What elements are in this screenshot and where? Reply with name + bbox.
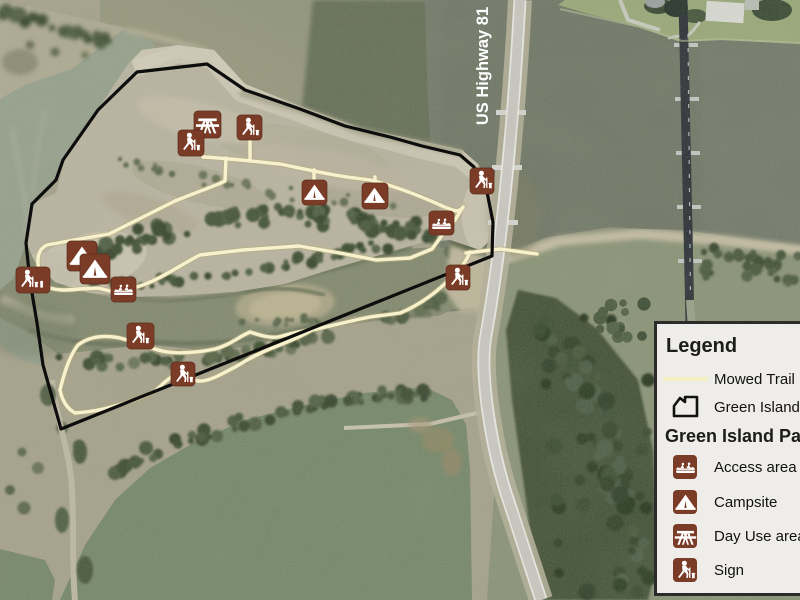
svg-text:US Highway 81: US Highway 81 <box>474 7 492 125</box>
svg-text:Sign: Sign <box>714 562 744 579</box>
svg-text:Mowed Trail: Mowed Trail <box>714 371 795 388</box>
svg-text:Green Island Pa: Green Island Pa <box>665 426 800 446</box>
svg-text:Day Use area: Day Use area <box>714 528 800 545</box>
svg-text:Access area: Access area <box>714 459 797 476</box>
svg-text:Green Island: Green Island <box>714 399 800 416</box>
svg-text:Campsite: Campsite <box>714 494 777 511</box>
svg-text:Legend: Legend <box>666 335 737 357</box>
